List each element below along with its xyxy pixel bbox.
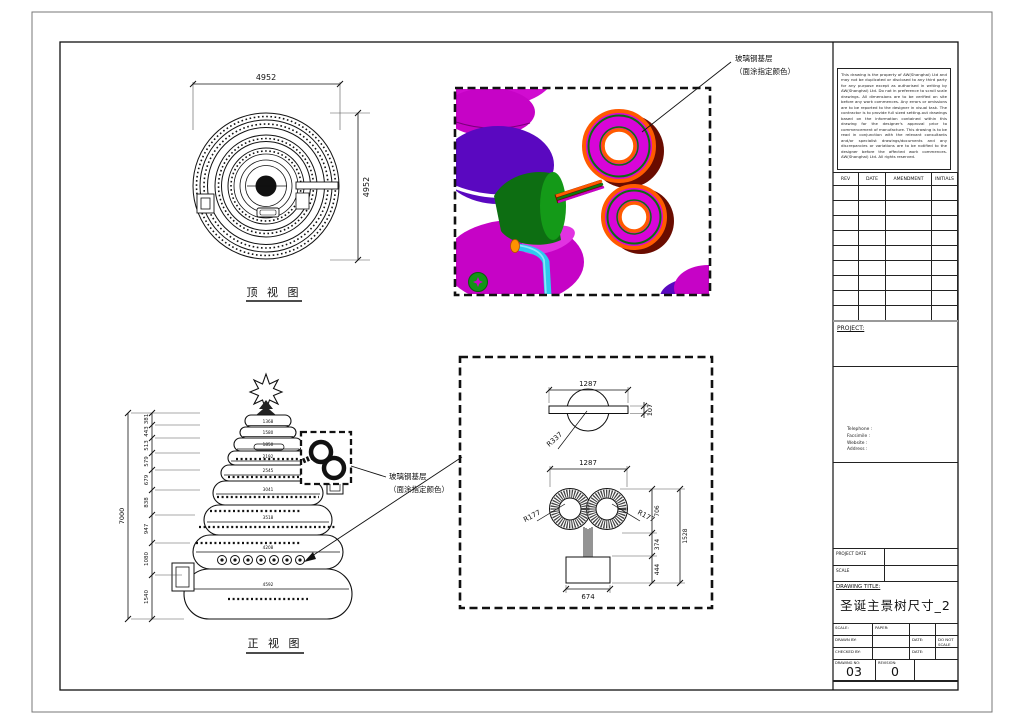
segment-dims: 381 443 513 579 679 838 947 1080 1540 bbox=[144, 414, 150, 604]
revision-table: REV DATE AMENDMENT INITIALS bbox=[833, 172, 958, 320]
svg-text:679: 679 bbox=[144, 474, 150, 485]
render-detail-box: 玻璃钢基层 （面涂指定颜色） bbox=[439, 38, 795, 317]
revision-row bbox=[833, 291, 958, 306]
scale-field-label: SCALE: bbox=[833, 624, 873, 636]
detail-top-radius: R337 bbox=[545, 430, 564, 448]
paper-field-label: PAPER: bbox=[873, 624, 910, 636]
detail-top-thickness: 107 bbox=[646, 404, 654, 416]
callout-leader-mid bbox=[351, 466, 386, 477]
project-section: PROJECT: bbox=[833, 320, 958, 366]
drawing-number-value: 03 bbox=[846, 665, 862, 678]
svg-text:947: 947 bbox=[144, 523, 150, 534]
svg-text:3041: 3041 bbox=[263, 487, 274, 492]
key-callout-box bbox=[301, 432, 351, 484]
svg-text:374: 374 bbox=[654, 539, 661, 551]
detail-radius-left: R177 bbox=[522, 508, 542, 524]
drawing-title-label: DRAWING TITLE: bbox=[833, 582, 958, 592]
revision-table-header: REV DATE AMENDMENT INITIALS bbox=[833, 173, 958, 186]
mount-bracket-right bbox=[296, 193, 309, 209]
revision-row bbox=[833, 201, 958, 216]
top-view-height-dim: 4952 bbox=[362, 177, 371, 197]
scale-row: SCALE bbox=[833, 565, 958, 581]
key-front-bow bbox=[550, 489, 628, 584]
svg-text:579: 579 bbox=[144, 456, 150, 467]
rev-col-header: REV bbox=[833, 173, 859, 186]
svg-text:838: 838 bbox=[144, 497, 150, 508]
address-label: Address : bbox=[847, 447, 872, 454]
frp-callout-line2: （面涂指定颜色） bbox=[735, 66, 795, 76]
revision-row bbox=[833, 186, 958, 201]
front-view: 1368 1580 1850 2192 2545 3041 3518 4208 … bbox=[118, 374, 462, 653]
svg-text:2545: 2545 bbox=[263, 468, 274, 473]
front-view-label: 正 视 图 bbox=[248, 636, 303, 650]
svg-text:4592: 4592 bbox=[263, 582, 274, 587]
title-block-bottom: SCALE: PAPER: DRAWN BY: DATE: DO NOT SCA… bbox=[833, 623, 958, 682]
facsimile-label: Facsimile : bbox=[847, 434, 872, 441]
company-section: Telephone : Facsimile : Website : Addres… bbox=[833, 366, 958, 462]
frp-callout-line1: 玻璃钢基层 bbox=[735, 53, 773, 63]
svg-text:1540: 1540 bbox=[144, 590, 150, 604]
svg-text:3518: 3518 bbox=[263, 515, 274, 520]
svg-text:1368: 1368 bbox=[263, 419, 274, 424]
project-date-label: PROJECT DATE bbox=[833, 549, 885, 565]
detail-base-width: 674 bbox=[581, 593, 595, 601]
logo-area bbox=[833, 462, 958, 548]
initials-col-header: INITIALS bbox=[932, 173, 958, 186]
mount-bracket-left bbox=[197, 194, 214, 213]
drawing-sheet: 4952 4952 顶 视 图 bbox=[0, 0, 1024, 724]
detail-top-width: 1287 bbox=[579, 380, 597, 388]
title-block: This drawing is the property of AW(Shang… bbox=[833, 42, 958, 690]
scale-row-label: SCALE bbox=[833, 566, 885, 581]
project-date-row: PROJECT DATE bbox=[833, 548, 958, 565]
key-base bbox=[566, 557, 610, 583]
frp-callout2-line1: 玻璃钢基层 bbox=[389, 471, 427, 481]
date-label: DATE: bbox=[910, 636, 936, 648]
revision-row bbox=[833, 261, 958, 276]
svg-text:1080: 1080 bbox=[144, 552, 150, 566]
revision-row bbox=[833, 306, 958, 321]
date-col-header: DATE bbox=[859, 173, 886, 186]
detail-chain-dims: 706 374 444 bbox=[654, 505, 661, 575]
detail-bottom-width: 1287 bbox=[579, 459, 597, 467]
svg-text:706: 706 bbox=[654, 505, 661, 517]
revision-row bbox=[833, 216, 958, 231]
drawing-title: 圣诞主景树尺寸_2 bbox=[833, 595, 958, 614]
revision-row bbox=[833, 246, 958, 261]
drawing-number-cell: DRAWING NO: 03 bbox=[833, 660, 876, 681]
svg-text:1850: 1850 bbox=[263, 442, 274, 447]
do-not-scale-note: DO NOT SCALE bbox=[936, 636, 958, 648]
detail-total-dim: 1528 bbox=[682, 528, 689, 543]
svg-text:513: 513 bbox=[144, 440, 150, 451]
svg-text:2192: 2192 bbox=[263, 454, 274, 459]
key-detail-box: 1287 107 R337 1 bbox=[460, 357, 712, 608]
top-view-width-dim: 4952 bbox=[256, 73, 276, 82]
revision-value: 0 bbox=[891, 665, 899, 678]
svg-text:1580: 1580 bbox=[263, 430, 274, 435]
amendment-col-header: AMENDMENT bbox=[886, 173, 932, 186]
svg-text:381: 381 bbox=[144, 414, 150, 425]
svg-text:444: 444 bbox=[654, 564, 661, 576]
telephone-label: Telephone : bbox=[847, 427, 872, 434]
revision-row bbox=[833, 231, 958, 246]
revision-row bbox=[833, 276, 958, 291]
checked-by-label: CHECKED BY: bbox=[833, 648, 873, 660]
drawn-by-label: DRAWN BY: bbox=[833, 636, 873, 648]
top-view: 4952 4952 顶 视 图 bbox=[190, 73, 371, 301]
tube-connector bbox=[511, 240, 520, 253]
callout-leader-top bbox=[642, 62, 731, 132]
svg-text:4208: 4208 bbox=[263, 545, 274, 550]
disclaimer-text: This drawing is the property of AW(Shang… bbox=[837, 68, 951, 170]
revision-cell: REVISION: 0 bbox=[876, 660, 915, 681]
detail-radius-right: R177 bbox=[636, 508, 656, 524]
side-arm bbox=[296, 182, 338, 189]
drawing-title-section: DRAWING TITLE: 圣诞主景树尺寸_2 bbox=[833, 581, 958, 623]
svg-text:443: 443 bbox=[144, 426, 150, 437]
overall-height-dim: 7000 bbox=[118, 508, 126, 525]
date-label: DATE: bbox=[910, 648, 936, 660]
project-label: PROJECT: bbox=[837, 325, 864, 332]
key-side-bar bbox=[549, 406, 628, 414]
top-view-label: 顶 视 图 bbox=[247, 285, 302, 299]
